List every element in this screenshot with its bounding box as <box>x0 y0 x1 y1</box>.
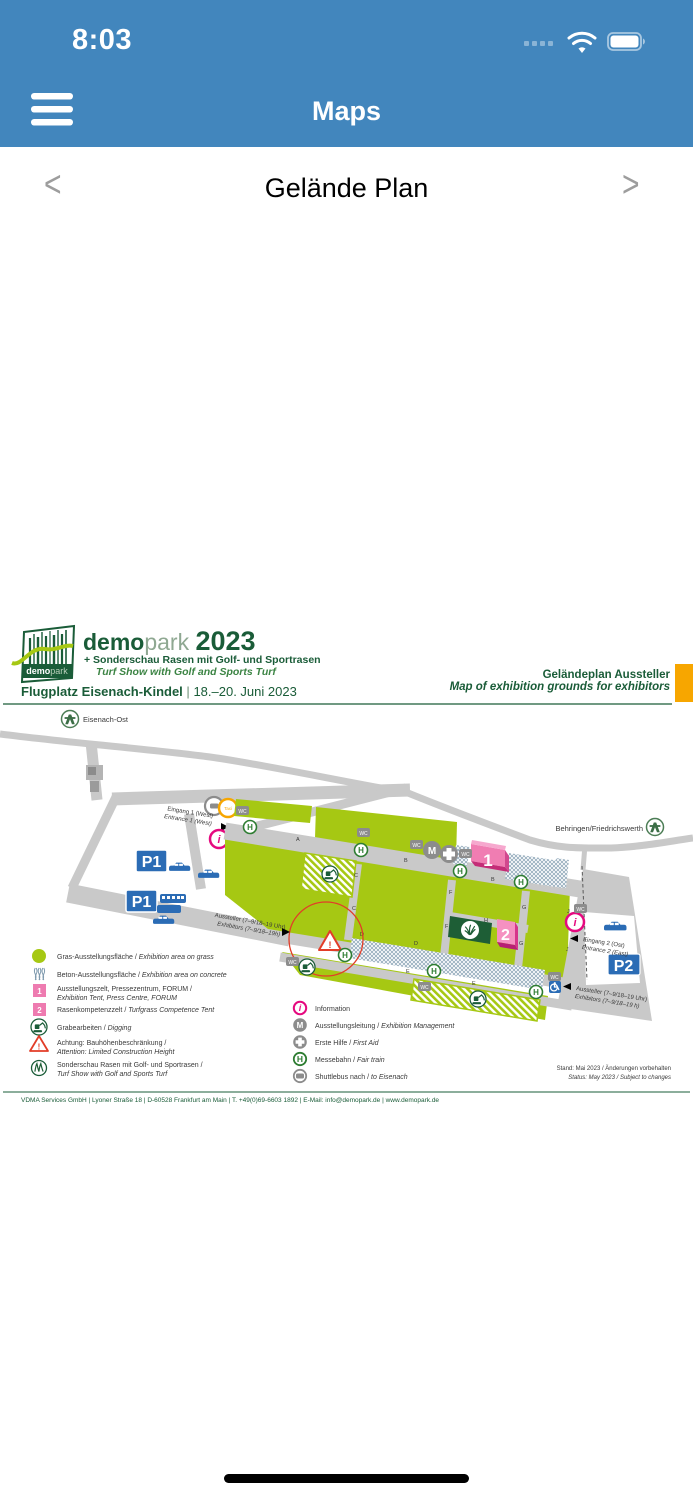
svg-text:Taxi: Taxi <box>224 806 232 811</box>
svg-text:C: C <box>352 906 356 912</box>
svg-text:1: 1 <box>37 987 42 996</box>
svg-text:Sonderschau Rasen mit Golf- un: Sonderschau Rasen mit Golf- und Sportras… <box>57 1062 203 1069</box>
svg-text:WC: WC <box>576 907 585 913</box>
svg-text:Status: May 2023 / Subject to: Status: May 2023 / Subject to changes <box>568 1075 671 1081</box>
svg-text:Ausstellungszelt, Pressezentru: Ausstellungszelt, Pressezentrum, FORUM / <box>57 986 192 993</box>
svg-text:Flugplatz Eisenach-Kindel | 18: Flugplatz Eisenach-Kindel | 18.–20. Juni… <box>21 684 297 699</box>
svg-text:Turf Show with Golf and Sport: Turf Show with Golf and Sports Turf <box>57 1071 168 1078</box>
svg-text:demopark: demopark <box>26 666 68 676</box>
svg-text:Stand: Mai 2023 / Änderungen v: Stand: Mai 2023 / Änderungen vorbehalten <box>557 1065 671 1072</box>
svg-text:Erste Hilfe / First Aid: Erste Hilfe / First Aid <box>315 1040 380 1047</box>
svg-text:Messebahn / Fair train: Messebahn / Fair train <box>315 1057 385 1064</box>
svg-text:E: E <box>406 969 410 975</box>
svg-text:2: 2 <box>501 927 510 944</box>
svg-text:Ausstellungsleitung / Exhibiti: Ausstellungsleitung / Exhibition Managem… <box>315 1023 455 1030</box>
svg-text:G: G <box>519 941 523 947</box>
svg-text:WC: WC <box>359 831 368 837</box>
svg-text:A: A <box>296 837 300 843</box>
svg-text:H: H <box>518 878 524 887</box>
svg-text:H: H <box>247 823 253 832</box>
svg-text:+ Sonderschau Rasen mit Golf-: + Sonderschau Rasen mit Golf- und Sportr… <box>84 654 321 666</box>
svg-text:B: B <box>404 858 408 864</box>
svg-text:B: B <box>491 877 495 883</box>
svg-text:G: G <box>522 905 526 911</box>
svg-text:Beton-Ausstellungsfläche / Exh: Beton-Ausstellungsfläche / Exhibition ar… <box>57 972 227 979</box>
svg-text:H: H <box>358 846 364 855</box>
svg-text:demopark 2023: demopark 2023 <box>83 626 256 656</box>
svg-text:H: H <box>457 867 463 876</box>
svg-text:H: H <box>297 1054 303 1064</box>
svg-text:M: M <box>428 846 436 857</box>
svg-text:Eisenach-Ost: Eisenach-Ost <box>83 715 129 724</box>
svg-text:P1: P1 <box>142 854 162 871</box>
svg-text:!: ! <box>329 940 332 950</box>
svg-text:D: D <box>414 941 418 947</box>
svg-text:Map of exhibition grounds for: Map of exhibition grounds for exhibitors <box>450 681 670 693</box>
svg-text:M: M <box>297 1021 304 1030</box>
svg-text:Grabearbeiten / Digging: Grabearbeiten / Digging <box>57 1025 131 1032</box>
svg-text:WC: WC <box>461 852 470 858</box>
svg-text:Rasenkompetenzzelt / Turfgrass: Rasenkompetenzzelt / Turfgrass Competenc… <box>57 1007 215 1014</box>
svg-text:1: 1 <box>483 851 492 870</box>
svg-text:H: H <box>431 967 437 976</box>
svg-text:Turf Show with Golf and Sports: Turf Show with Golf and Sports Turf <box>96 666 277 678</box>
svg-text:Achtung: Bauhöhenbeschränkung: Achtung: Bauhöhenbeschränkung / <box>57 1040 166 1047</box>
svg-text:E: E <box>472 981 476 987</box>
svg-text:Information: Information <box>315 1006 350 1013</box>
svg-text:P1: P1 <box>132 894 152 911</box>
svg-text:Shuttlebus nach / to Eisenach: Shuttlebus nach / to Eisenach <box>315 1074 408 1081</box>
svg-text:Exhibition Tent, Press Centre,: Exhibition Tent, Press Centre, FORUM <box>57 995 177 1002</box>
svg-text:H: H <box>342 951 348 960</box>
svg-text:WC: WC <box>420 985 429 991</box>
svg-text:Gras-Ausstellungsfläche / Exhi: Gras-Ausstellungsfläche / Exhibition are… <box>57 954 214 961</box>
svg-text:H: H <box>533 988 539 997</box>
svg-text:Geländeplan Aussteller: Geländeplan Aussteller <box>543 669 671 681</box>
svg-text:WC: WC <box>238 809 247 815</box>
svg-text:Behringen/Friedrichswerth: Behringen/Friedrichswerth <box>555 824 643 833</box>
svg-text:WC: WC <box>550 975 559 981</box>
svg-text:C: C <box>354 873 358 879</box>
svg-text:VDMA Services GmbH | Lyoner St: VDMA Services GmbH | Lyoner Straße 18 | … <box>21 1097 439 1104</box>
svg-text:Attention: Limited Constructio: Attention: Limited Construction Height <box>56 1049 176 1056</box>
svg-text:2: 2 <box>37 1006 42 1015</box>
svg-text:WC: WC <box>412 843 421 849</box>
svg-text:!: ! <box>38 1043 41 1052</box>
svg-text:P2: P2 <box>614 958 634 975</box>
svg-text:WC: WC <box>288 960 297 966</box>
